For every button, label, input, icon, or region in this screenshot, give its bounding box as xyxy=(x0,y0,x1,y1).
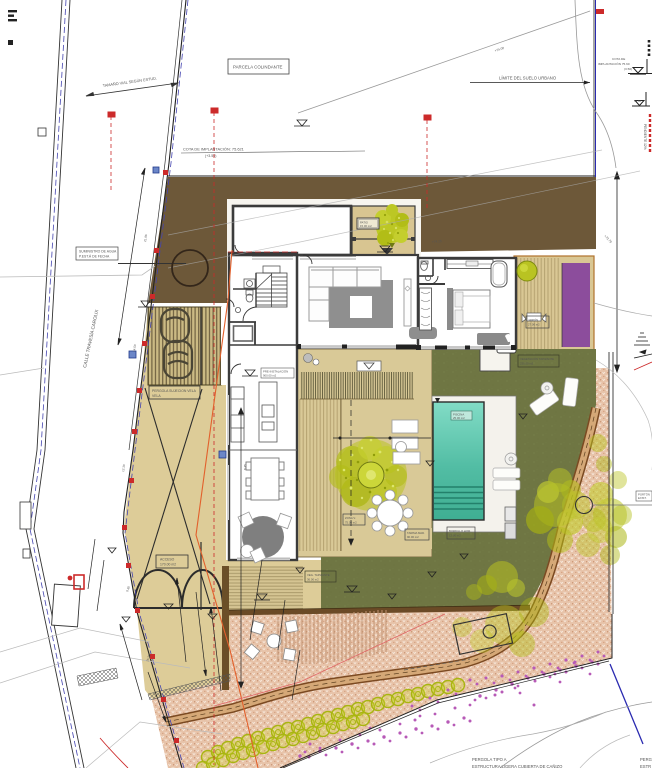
svg-text:170.00 m2: 170.00 m2 xyxy=(160,563,176,567)
svg-text:8.45: 8.45 xyxy=(243,464,247,470)
svg-text:JARDÍN: JARDÍN xyxy=(528,318,538,322)
svg-text:PERGOLA SUJECION VELA: PERGOLA SUJECION VELA xyxy=(152,389,197,393)
svg-text:27.00 m2: 27.00 m2 xyxy=(528,323,540,327)
svg-text:BORDILLO HOR.: BORDILLO HOR. xyxy=(449,529,471,533)
svg-text:15.00 m2: 15.00 m2 xyxy=(360,224,372,228)
svg-text:VEGETACIÓN TAPIZANTE: VEGETACIÓN TAPIZANTE xyxy=(520,356,554,361)
svg-text:90.00 m2: 90.00 m2 xyxy=(407,535,419,539)
svg-text:PERG: PERG xyxy=(640,757,652,762)
svg-text:IMPLANTACIÓN 75.60: IMPLANTACIÓN 75.60 xyxy=(598,61,630,66)
svg-text:(+3.50): (+3.50) xyxy=(205,154,217,158)
svg-text:PENDIENTE 12%: PENDIENTE 12% xyxy=(643,124,647,150)
svg-text:PERGOLA TIPO A: PERGOLA TIPO A xyxy=(472,757,507,762)
svg-text:ACCESO: ACCESO xyxy=(160,558,175,562)
svg-text:EXIST.: EXIST. xyxy=(638,496,647,500)
svg-text:12.00 m2: 12.00 m2 xyxy=(449,534,461,538)
svg-text:ESTRUCTURA LIGERA CUBIERTA DE: ESTRUCTURA LIGERA CUBIERTA DE CAÑIZO xyxy=(472,764,563,768)
svg-text:900.00 m2: 900.00 m2 xyxy=(263,374,277,378)
svg-text:(3.50): (3.50) xyxy=(624,67,632,71)
svg-text:36.00 m2: 36.00 m2 xyxy=(307,578,319,582)
svg-text:COTA DE: COTA DE xyxy=(612,57,625,61)
svg-text:74.60: 74.60 xyxy=(634,99,641,103)
svg-text:COTA DE IMPLANTACIÓN: 75.621: COTA DE IMPLANTACIÓN: 75.621 xyxy=(183,147,244,152)
svg-text:SUMINISTRO DE AGUA: SUMINISTRO DE AGUA xyxy=(79,250,117,254)
svg-text:P.EST.Á DE FECHA: P.EST.Á DE FECHA xyxy=(79,255,110,259)
svg-text:230.00 m2: 230.00 m2 xyxy=(520,362,534,366)
svg-text:LÍMITE DEL SUELO URBANO: LÍMITE DEL SUELO URBANO xyxy=(499,76,557,81)
svg-text:ESTR: ESTR xyxy=(640,764,651,768)
svg-text:ZONA V.: ZONA V. xyxy=(345,516,356,520)
svg-text:PARCELA COLINDANTE: PARCELA COLINDANTE xyxy=(233,65,283,70)
svg-text:25.00 m2: 25.00 m2 xyxy=(453,416,465,420)
svg-text:VELA: VELA xyxy=(152,394,161,398)
svg-text:VEG. TAPIZANTE: VEG. TAPIZANTE xyxy=(307,573,330,577)
